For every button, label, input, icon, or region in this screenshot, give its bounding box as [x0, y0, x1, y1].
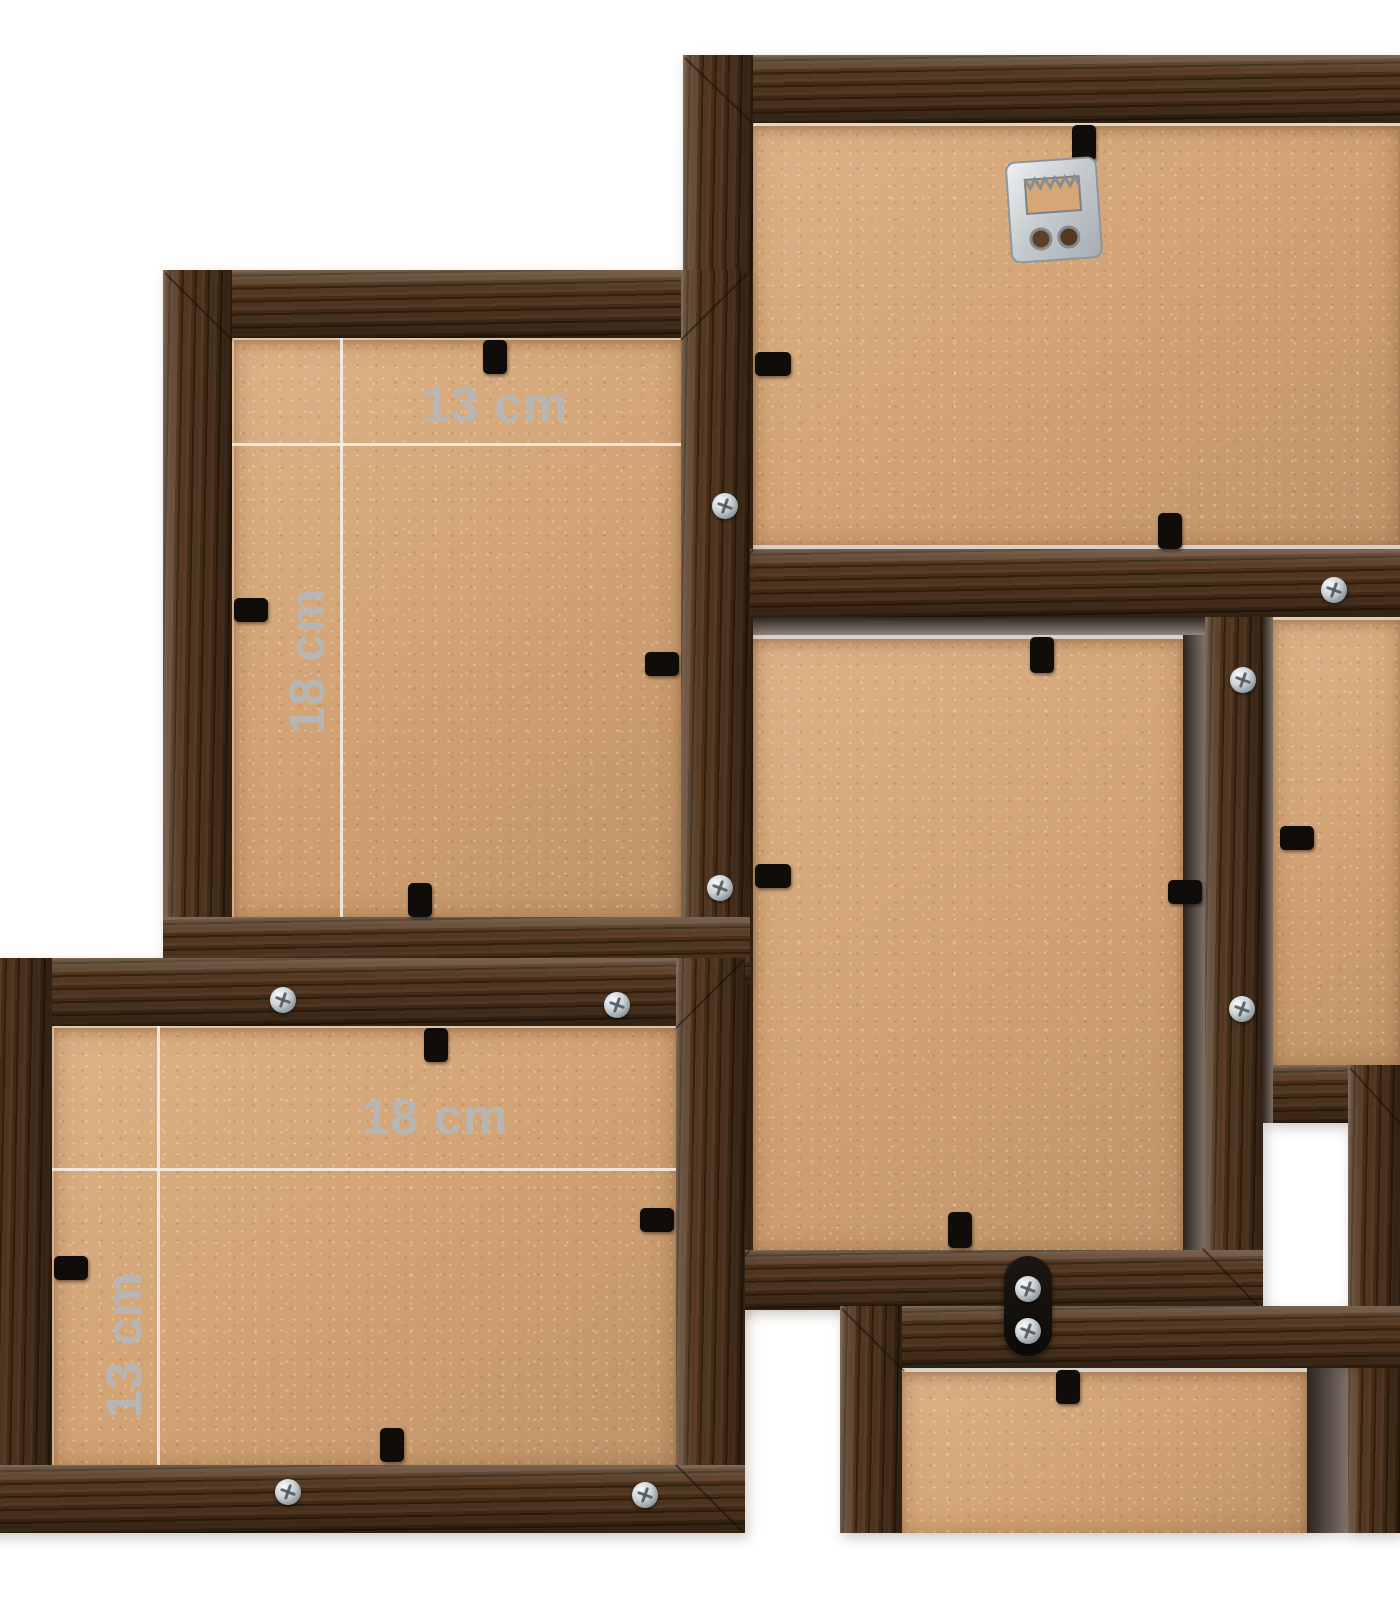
frame-bottom-right-rail-top — [840, 1306, 1400, 1368]
phillips-screw-icon — [1015, 1276, 1041, 1302]
frame-gap-shadow — [1307, 1368, 1348, 1533]
frame-bottom-right — [0, 0, 1400, 1600]
phillips-screw-icon — [1015, 1318, 1041, 1344]
backing-clip-icon — [1056, 1370, 1080, 1404]
frame-bottom-right-backing-board — [902, 1368, 1307, 1533]
collage-frame-back-photo: 13 cm 18 cm 18 cm 13 cm — [0, 0, 1400, 1600]
